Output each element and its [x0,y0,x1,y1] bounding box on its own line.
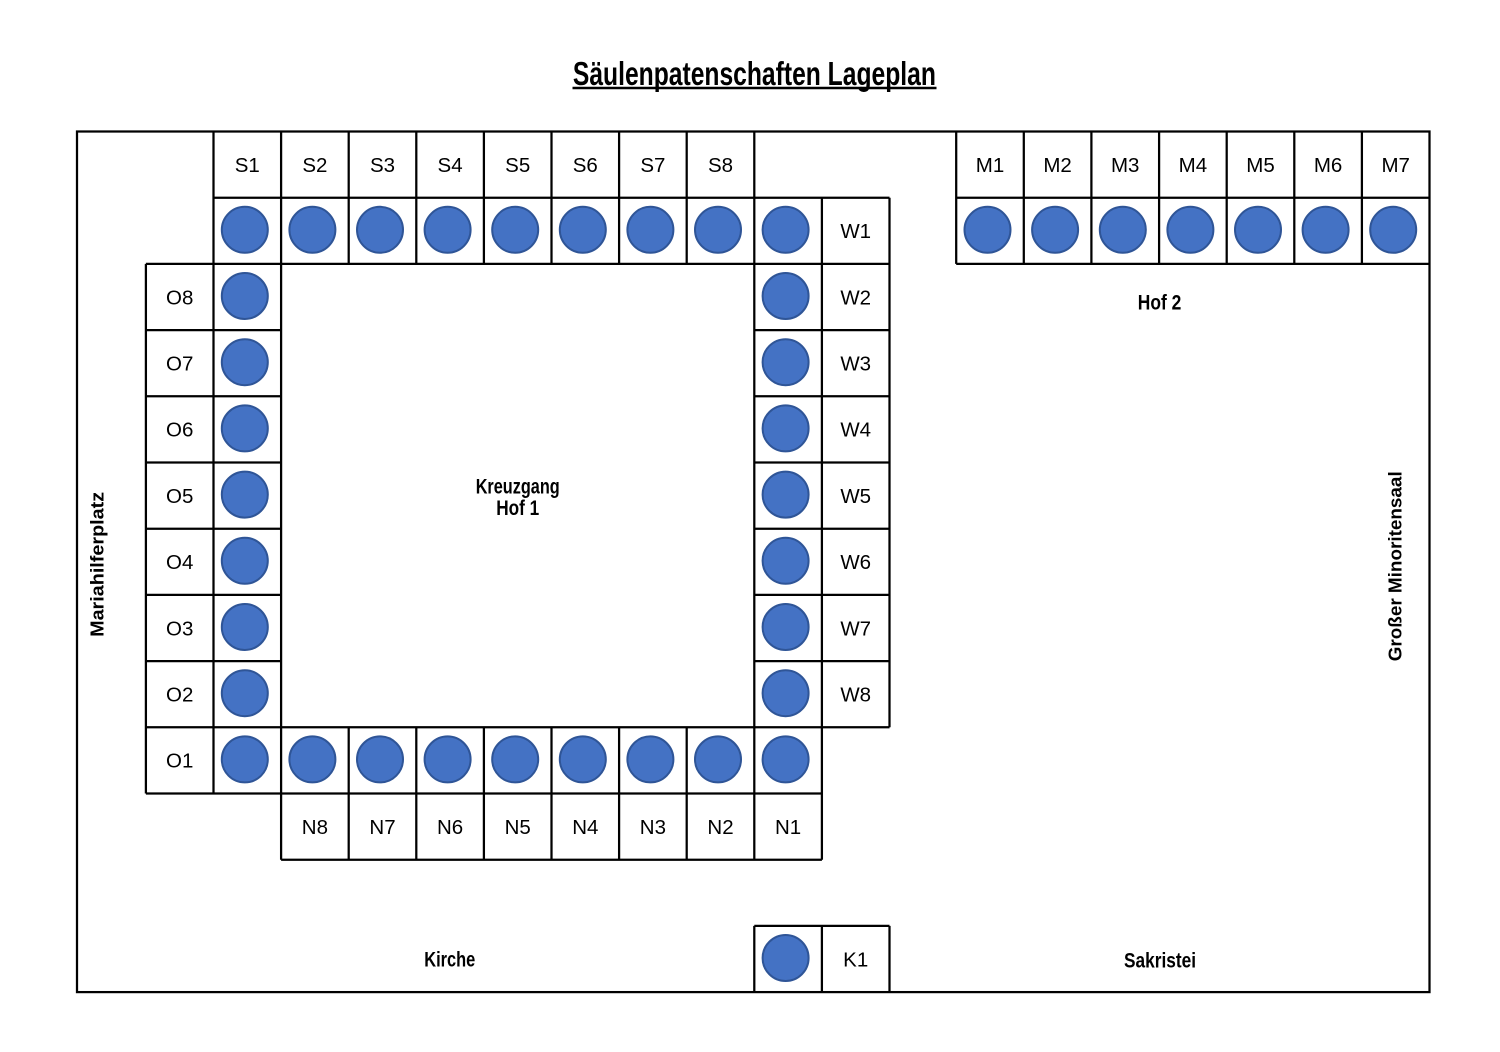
svg-text:O7: O7 [166,353,193,376]
svg-text:O6: O6 [166,419,193,442]
svg-text:W2: W2 [840,286,871,309]
svg-text:S2: S2 [302,154,327,177]
svg-text:N7: N7 [369,816,395,839]
svg-text:N1: N1 [775,816,801,839]
svg-text:W7: W7 [840,617,871,640]
svg-text:Säulenpatenschaften Lageplan: Säulenpatenschaften Lageplan [573,55,936,92]
svg-text:O5: O5 [166,485,193,508]
svg-text:S8: S8 [708,154,733,177]
svg-text:Hof 2: Hof 2 [1138,292,1182,315]
svg-text:S1: S1 [235,154,260,177]
svg-text:Sakristei: Sakristei [1124,950,1196,973]
svg-text:Kirche: Kirche [424,949,475,972]
svg-text:W8: W8 [840,684,871,707]
svg-text:S6: S6 [573,154,598,177]
svg-text:W1: W1 [840,220,871,243]
svg-text:O8: O8 [166,286,193,309]
svg-text:N5: N5 [505,816,531,839]
svg-text:M4: M4 [1179,154,1207,177]
svg-text:M3: M3 [1111,154,1139,177]
svg-text:N6: N6 [437,816,463,839]
svg-text:S5: S5 [505,154,530,177]
svg-text:K1: K1 [843,948,868,971]
svg-text:O4: O4 [166,551,193,574]
svg-text:M5: M5 [1246,154,1274,177]
svg-text:N4: N4 [572,816,598,839]
svg-text:S3: S3 [370,154,395,177]
svg-text:M7: M7 [1381,154,1409,177]
svg-text:M1: M1 [976,154,1004,177]
svg-text:Großer Minoritensaal: Großer Minoritensaal [1386,471,1406,661]
svg-text:O1: O1 [166,750,193,773]
svg-text:W4: W4 [840,419,871,442]
svg-text:N3: N3 [640,816,666,839]
svg-text:S7: S7 [640,154,665,177]
svg-text:W3: W3 [840,353,871,376]
svg-text:S4: S4 [438,154,463,177]
svg-text:N2: N2 [707,816,733,839]
svg-text:M6: M6 [1314,154,1342,177]
svg-text:Hof 1: Hof 1 [496,497,539,520]
svg-text:O3: O3 [166,617,193,640]
svg-text:N8: N8 [302,816,328,839]
svg-text:W6: W6 [840,551,871,574]
svg-text:Kreuzgang: Kreuzgang [476,476,560,499]
svg-text:O2: O2 [166,684,193,707]
svg-text:Mariahilferplatz: Mariahilferplatz [88,492,108,637]
svg-text:W5: W5 [840,485,871,508]
svg-text:M2: M2 [1043,154,1071,177]
